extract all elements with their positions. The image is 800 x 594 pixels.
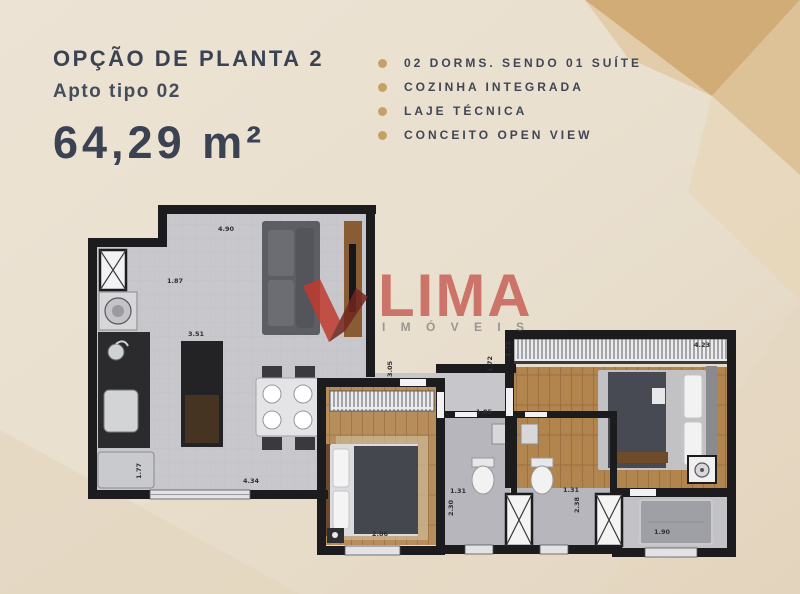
- washer: [99, 292, 137, 330]
- bullet-icon: [378, 131, 387, 140]
- feature-item: 02 DORMS. SENDO 01 SUÍTE: [378, 56, 642, 70]
- feature-label: 02 DORMS. SENDO 01 SUÍTE: [404, 56, 642, 70]
- area-value: 64,29 m²: [53, 117, 324, 169]
- page-title: OPÇÃO DE PLANTA 2: [53, 46, 324, 72]
- dimension-label: 4.23: [694, 341, 710, 349]
- bullet-icon: [378, 59, 387, 68]
- feature-label: LAJE TÉCNICA: [404, 104, 527, 118]
- bedroom2-nightstand: [327, 528, 344, 543]
- shaft-icon: [100, 250, 126, 290]
- suite-side-table: [688, 456, 716, 483]
- feature-item: CONCEITO OPEN VIEW: [378, 128, 642, 142]
- bedroom2-closet: [330, 391, 434, 411]
- dimension-label: 1.31: [450, 487, 467, 495]
- dimension-label: 2.86: [372, 530, 389, 538]
- feature-list: 02 DORMS. SENDO 01 SUÍTE COZINHA INTEGRA…: [378, 56, 642, 152]
- dimension-label: 1.31: [563, 486, 580, 494]
- feature-label: COZINHA INTEGRADA: [404, 80, 584, 94]
- title-block: OPÇÃO DE PLANTA 2 Apto tipo 02 64,29 m²: [53, 46, 324, 169]
- sofa: [262, 221, 320, 335]
- feature-item: COZINHA INTEGRADA: [378, 80, 642, 94]
- dimension-label: 4.90: [218, 225, 235, 233]
- service-room-bench: [640, 500, 712, 544]
- dimension-label: 2.38: [573, 497, 581, 514]
- dimension-label: 1.87: [167, 277, 183, 285]
- dimension-label: 2.30: [447, 500, 455, 517]
- page-subtitle: Apto tipo 02: [53, 81, 324, 103]
- dimension-label: 1.72: [486, 356, 494, 372]
- feature-item: LAJE TÉCNICA: [378, 104, 642, 118]
- bullet-icon: [378, 83, 387, 92]
- dimension-label: 1.72: [504, 341, 512, 357]
- dimension-label: 4.34: [243, 477, 260, 485]
- dimension-label: 3.51: [188, 330, 205, 338]
- shaft-icon: [506, 494, 532, 546]
- dimension-label: 1.77: [135, 463, 143, 479]
- brochure-page: 4.90 1.87 3.51 4.34 1.77 2.86 3.05 1.85 …: [0, 0, 800, 594]
- watermark-sub: I M Ó V E I S: [382, 319, 530, 334]
- watermark-brand: LIMA: [378, 262, 533, 329]
- dimension-label: 3.05: [386, 361, 394, 378]
- shaft-icon: [596, 494, 622, 546]
- dimension-label: 1.85: [476, 408, 493, 416]
- fridge: [98, 452, 154, 488]
- dimension-label: 1.90: [654, 528, 671, 536]
- kitchen-counter: [98, 332, 150, 448]
- bullet-icon: [378, 107, 387, 116]
- bedroom2-bed: [326, 444, 418, 536]
- feature-label: CONCEITO OPEN VIEW: [404, 128, 592, 142]
- kitchen-island: [181, 341, 223, 447]
